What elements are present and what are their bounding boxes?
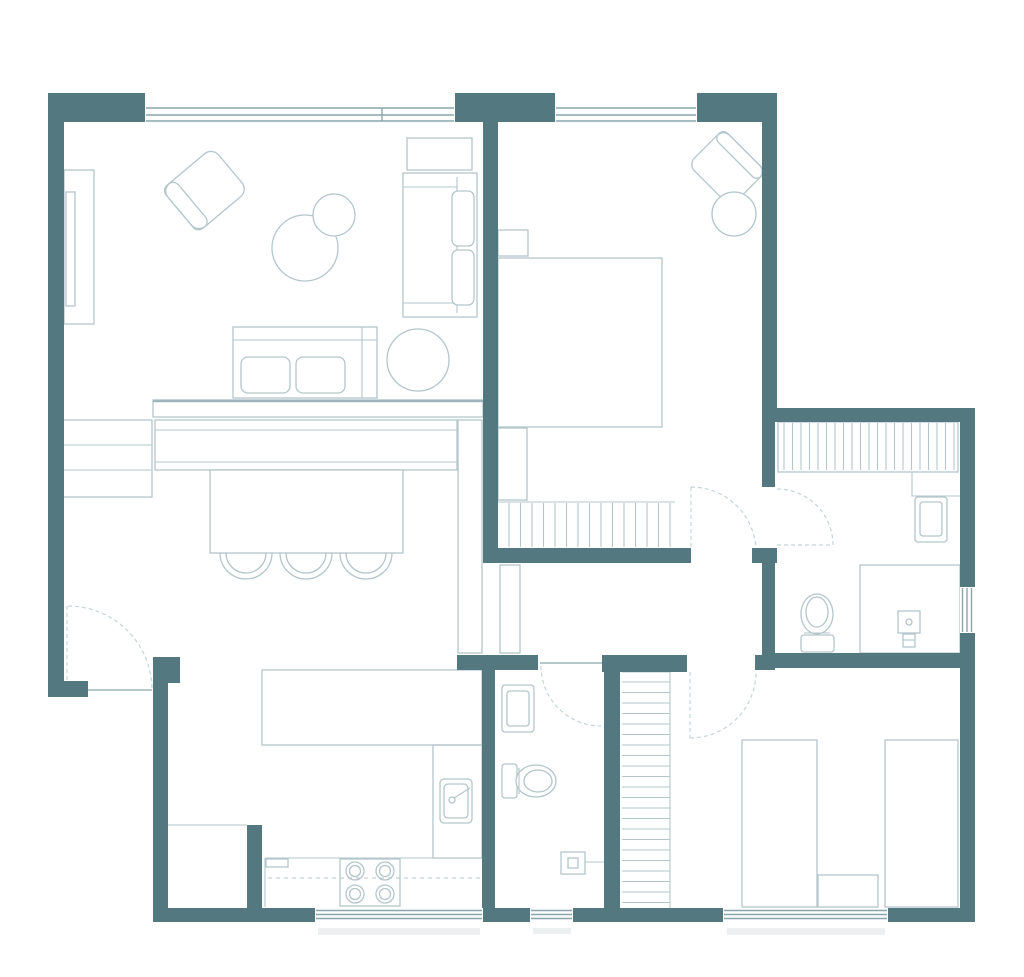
dining-island	[210, 470, 403, 553]
window-shadow	[318, 928, 480, 935]
wall	[604, 670, 620, 910]
wall	[153, 908, 315, 922]
wall	[697, 93, 777, 122]
wall	[48, 681, 88, 697]
room-hallway	[498, 563, 762, 653]
wall	[762, 548, 775, 655]
wall	[153, 657, 180, 683]
wall	[762, 653, 975, 668]
window-shadow	[727, 928, 885, 935]
wall	[602, 655, 687, 672]
wall	[457, 655, 538, 670]
sideboard	[64, 170, 94, 324]
bar-counter	[153, 400, 483, 417]
wall	[483, 548, 691, 563]
kitchen-island	[262, 670, 482, 745]
wall	[762, 420, 775, 487]
bed	[498, 258, 662, 427]
nightstand	[818, 875, 878, 907]
wall	[960, 668, 975, 922]
toilet-tank	[502, 764, 517, 798]
wall	[48, 93, 64, 688]
wall	[960, 408, 975, 587]
side-table	[407, 138, 472, 170]
nightstand	[498, 230, 528, 256]
desk	[498, 428, 527, 500]
bed	[742, 740, 817, 907]
wall	[755, 655, 775, 670]
wall	[762, 408, 975, 422]
wall	[573, 908, 725, 922]
room-staircase	[620, 670, 670, 908]
daybed-pillow	[296, 357, 345, 393]
wall	[153, 657, 168, 922]
wall	[762, 122, 777, 420]
wall-cabinet	[63, 420, 152, 497]
wall	[483, 908, 530, 922]
window-shadow	[533, 928, 571, 934]
room-closet	[168, 825, 247, 908]
wall	[455, 93, 555, 122]
toilet-tank	[801, 635, 834, 652]
wall	[483, 93, 498, 563]
floor-plan-svg: Apartment floor plan	[0, 0, 1024, 977]
side-table-round	[387, 329, 449, 391]
sofa-cushion	[452, 191, 474, 246]
wall	[482, 670, 495, 922]
daybed-pillow	[241, 357, 290, 393]
coffee-table-small	[313, 194, 355, 236]
sofa-cushion	[452, 250, 474, 305]
side-table-round	[712, 192, 756, 236]
wall	[247, 825, 262, 922]
bed	[885, 740, 958, 907]
floor-plan-page: Apartment floor plan	[0, 0, 1024, 977]
